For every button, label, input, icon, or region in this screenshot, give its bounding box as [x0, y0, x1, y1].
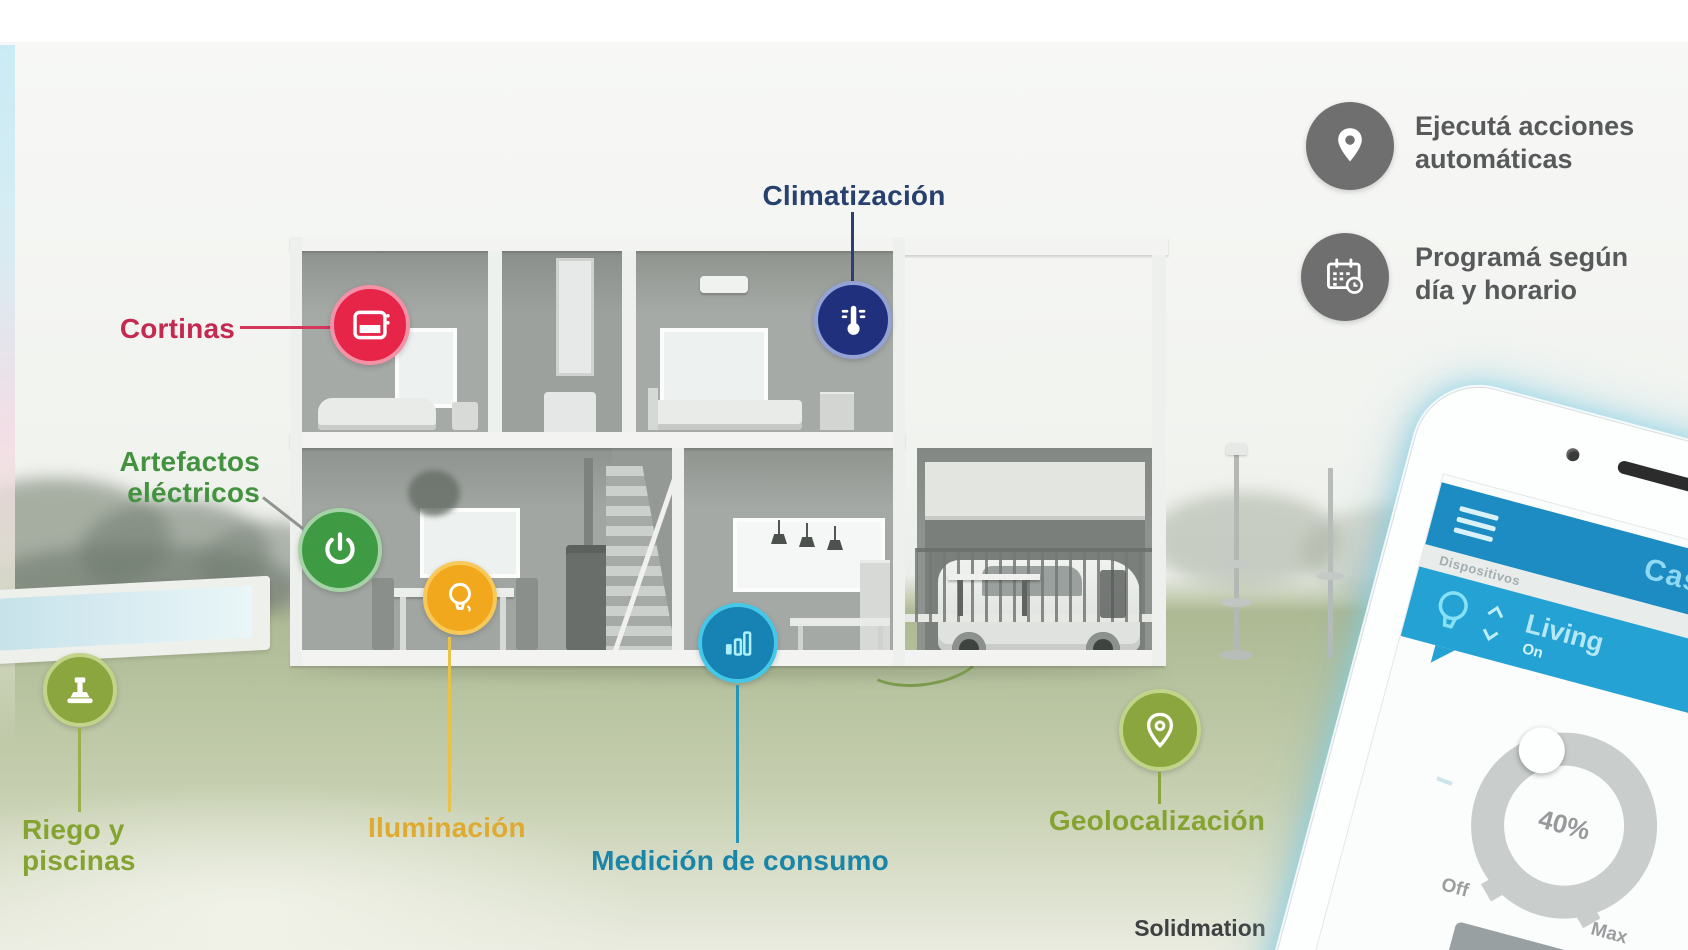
- badge-medicion: [698, 603, 778, 683]
- connector-climatizacion: [851, 212, 854, 284]
- side-table: [452, 402, 478, 430]
- badge-artefactos: [298, 508, 382, 592]
- bar-chart-icon: [715, 620, 761, 666]
- pendant-lamp: [806, 523, 808, 538]
- phone-speaker: [1616, 460, 1688, 501]
- connector-geolocalizacion: [1158, 772, 1161, 804]
- action-1-line2: automáticas: [1415, 143, 1685, 176]
- table-leg: [400, 597, 406, 651]
- lamppost-ring: [1224, 560, 1249, 568]
- shower-column: [556, 258, 594, 376]
- ac-unit: [700, 276, 748, 293]
- label-artefactos-line2: eléctricos: [85, 477, 260, 508]
- action-2-line2: día y horario: [1415, 274, 1685, 307]
- house-wall-left: [290, 237, 302, 666]
- label-iluminacion: Iluminación: [368, 812, 553, 843]
- bedroom-window: [660, 328, 768, 404]
- chair: [372, 578, 394, 650]
- interior-wall: [622, 251, 636, 432]
- badge-iluminacion: [423, 561, 497, 635]
- location-pin-icon: [1324, 120, 1376, 172]
- badge-geolocalizacion: [1119, 689, 1201, 771]
- action-1-line1: Ejecutá acciones: [1415, 110, 1685, 143]
- terrace-chair: [1100, 570, 1126, 618]
- terrace-table-leg: [1022, 580, 1027, 616]
- fountain-icon: [59, 669, 101, 711]
- action-2-line1: Programá según: [1415, 241, 1685, 274]
- lamppost-base: [1220, 650, 1253, 660]
- dial-min-label: Off: [1439, 874, 1471, 902]
- label-cortinas: Cortinas: [85, 313, 235, 344]
- floor-slab: [290, 432, 905, 448]
- badge-climatizacion: [814, 281, 892, 359]
- label-riego-line1: Riego y: [22, 814, 182, 845]
- wood-stove: [566, 545, 612, 651]
- infographic-scene: Cortinas Climatización Artefactos eléctr…: [0, 0, 1688, 950]
- connector-medicion: [736, 685, 739, 843]
- lamppost-ring: [1221, 598, 1252, 607]
- lamppost-ring: [1316, 572, 1344, 580]
- label-geolocalizacion-text: Geolocalización: [1049, 805, 1265, 836]
- label-medicion: Medición de consumo: [570, 845, 910, 876]
- house-wall-mid: [893, 237, 905, 666]
- power-icon: [316, 526, 364, 574]
- badge-cortinas: [330, 285, 410, 365]
- min-tick: [1436, 776, 1452, 785]
- brand-text: Solidmation: [1134, 915, 1266, 941]
- bathroom-sink: [544, 392, 596, 432]
- label-riego: Riego y piscinas: [22, 814, 182, 876]
- interior-wall: [488, 251, 502, 432]
- action-text-1: Ejecutá acciones automáticas: [1415, 110, 1685, 176]
- chevron-up-down-icon[interactable]: [1478, 600, 1509, 648]
- lamppost: [1234, 450, 1239, 658]
- label-geolocalizacion: Geolocalización: [1032, 805, 1282, 836]
- thermometer-icon: [831, 298, 875, 342]
- label-climatizacion-text: Climatización: [762, 180, 945, 211]
- label-climatizacion: Climatización: [738, 180, 970, 211]
- house-wall-right: [1152, 255, 1166, 666]
- pendant-lamp: [778, 520, 780, 535]
- map-pin-icon: [1136, 706, 1184, 754]
- connector-iluminacion: [448, 637, 451, 812]
- interior-wall: [672, 448, 684, 650]
- garage-door-panel: [925, 462, 1145, 520]
- plant: [408, 470, 460, 516]
- house-roof: [290, 237, 905, 251]
- connector-cortinas: [240, 326, 334, 329]
- pendant-lamp: [834, 526, 836, 541]
- calendar-clock-icon: [1319, 251, 1371, 303]
- lamppost-head: [1226, 443, 1247, 455]
- stove-pipe: [584, 458, 593, 550]
- kitchen-table: [790, 618, 890, 626]
- bed-headboard: [648, 388, 658, 430]
- kitchen-counter: [860, 560, 890, 650]
- top-margin: [0, 0, 1688, 42]
- chair: [516, 578, 538, 650]
- label-iluminacion-text: Iluminación: [368, 812, 526, 843]
- phone-camera: [1565, 447, 1581, 463]
- bulb-icon: [439, 577, 481, 619]
- brand-name: Solidmation: [1100, 915, 1300, 942]
- label-cortinas-text: Cortinas: [120, 313, 235, 344]
- cancel-button-label: Cancelar: [1493, 946, 1590, 950]
- table-leg: [798, 626, 803, 652]
- connector-riego: [78, 728, 81, 812]
- label-riego-line2: piscinas: [22, 845, 182, 876]
- table-leg: [500, 597, 506, 651]
- label-artefactos-line1: Artefactos: [85, 446, 260, 477]
- device-row-tail: [1431, 645, 1455, 668]
- garage-roof: [898, 237, 1168, 255]
- terrace-table-leg: [958, 580, 963, 616]
- action-circle-calendar: [1301, 233, 1389, 321]
- lamppost: [1328, 468, 1333, 658]
- action-circle-pin: [1306, 102, 1394, 190]
- bathtub: [318, 398, 436, 430]
- badge-riego: [43, 653, 117, 727]
- action-text-2: Programá según día y horario: [1415, 241, 1685, 307]
- bed: [652, 400, 802, 430]
- dial-max-label: Max: [1588, 919, 1629, 950]
- label-medicion-text: Medición de consumo: [591, 845, 889, 876]
- curtain-icon: [347, 302, 393, 348]
- label-artefactos: Artefactos eléctricos: [85, 446, 260, 508]
- bulb-icon: [1418, 579, 1484, 645]
- dresser: [820, 392, 854, 430]
